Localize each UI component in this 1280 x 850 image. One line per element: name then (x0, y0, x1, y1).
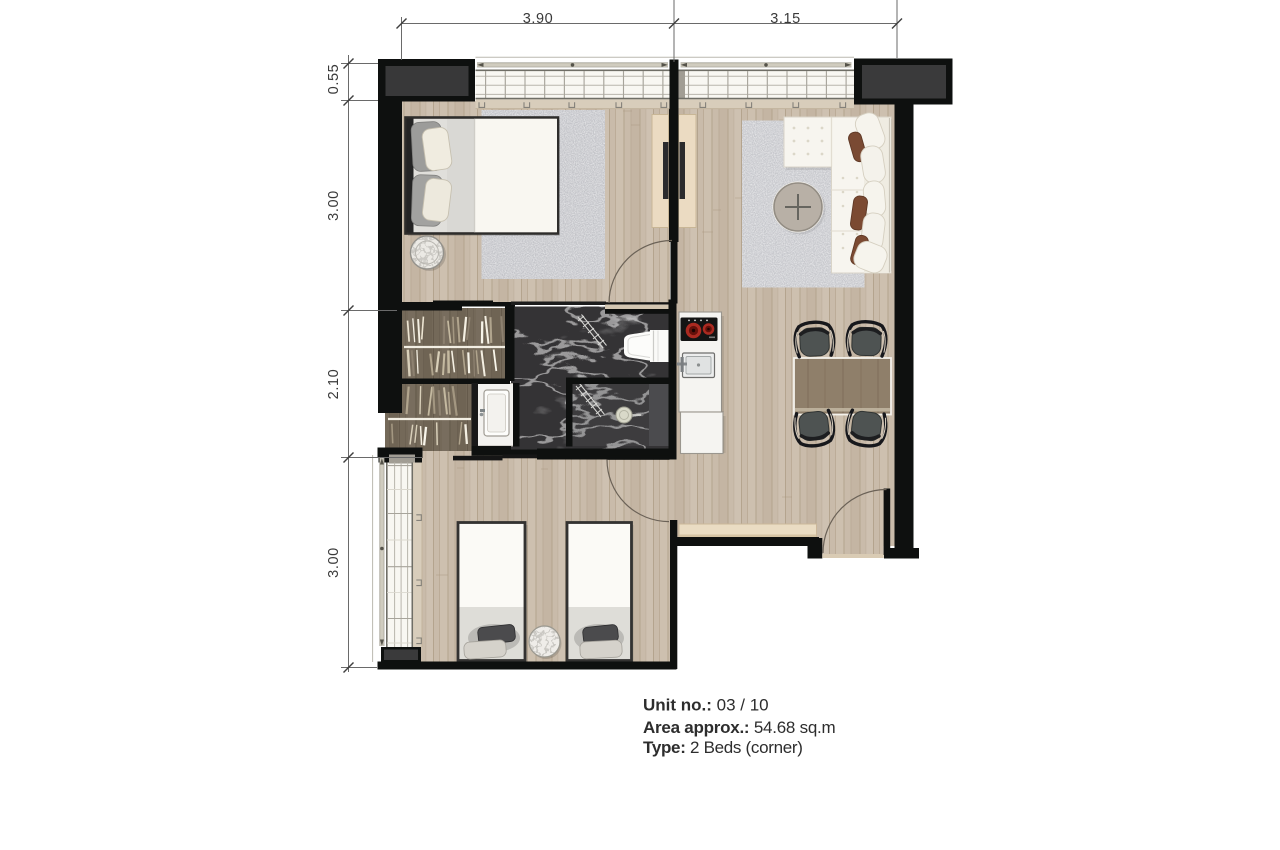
svg-text:2.10: 2.10 (326, 369, 342, 400)
svg-text:3.00: 3.00 (326, 190, 342, 221)
svg-text:Area approx.: 54.68 sq.m: Area approx.: 54.68 sq.m (643, 718, 836, 737)
svg-text:Type: 2 Beds (corner): Type: 2 Beds (corner) (643, 738, 803, 757)
svg-text:Unit no.: 03 / 10: Unit no.: 03 / 10 (643, 696, 769, 715)
svg-text:0.55: 0.55 (326, 64, 342, 95)
svg-text:3.15: 3.15 (770, 11, 801, 27)
svg-text:3.00: 3.00 (326, 547, 342, 578)
svg-text:3.90: 3.90 (523, 11, 554, 27)
